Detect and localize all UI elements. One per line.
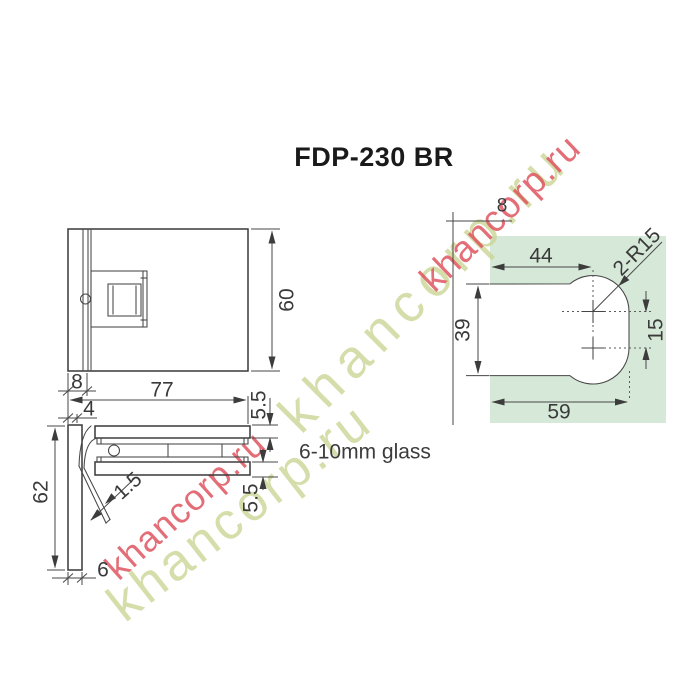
dim-label-60: 60 — [276, 288, 299, 311]
dim-label-39: 39 — [452, 318, 475, 341]
dim-label-15mm: 1.5 — [109, 468, 146, 505]
technical-drawing-page: khancorp.ru khancorp.ru khancorp.ru khan… — [0, 0, 700, 700]
dim-label-4: 4 — [83, 398, 95, 421]
dim-side-offset: 4 — [58, 398, 97, 424]
dim-label-55-top: 5.5 — [248, 390, 271, 419]
glass-thickness-note: 6-10mm glass — [299, 441, 431, 464]
dim-label-59: 59 — [547, 401, 570, 424]
hinge-body-outline — [68, 229, 248, 371]
dim-notch-height: 39 — [452, 284, 490, 376]
drawing-canvas: khancorp.ru khancorp.ru khancorp.ru khan… — [0, 0, 700, 700]
gasket-dim-arrow — [105, 493, 116, 504]
dim-label-77: 77 — [150, 379, 173, 402]
dim-front-height: 60 — [251, 229, 299, 371]
dim-front-width: 77 — [71, 379, 249, 425]
clamp-notch — [91, 271, 147, 327]
dim-label-62: 62 — [30, 480, 53, 503]
dim-label-44: 44 — [529, 245, 553, 268]
cutout-shape-fill — [490, 276, 629, 384]
wall-plate-edge-lines — [83, 229, 91, 371]
dim-label-15: 15 — [645, 318, 668, 341]
dim-label-6: 6 — [97, 559, 109, 582]
dim-label-55-bottom: 5.5 — [240, 483, 263, 512]
clamp-detail-lines — [113, 272, 147, 326]
dim-label-8: 8 — [71, 371, 83, 394]
wall-plate — [68, 425, 82, 570]
screw-hole — [81, 294, 91, 304]
dim-label-edge-8: 8 — [497, 196, 508, 217]
drawing-title: FDP-230 BR — [294, 142, 454, 172]
top-clamp-plate — [95, 426, 250, 438]
dim-side-height: 62 — [30, 426, 66, 570]
dim-side-plate: 6 — [52, 559, 109, 586]
